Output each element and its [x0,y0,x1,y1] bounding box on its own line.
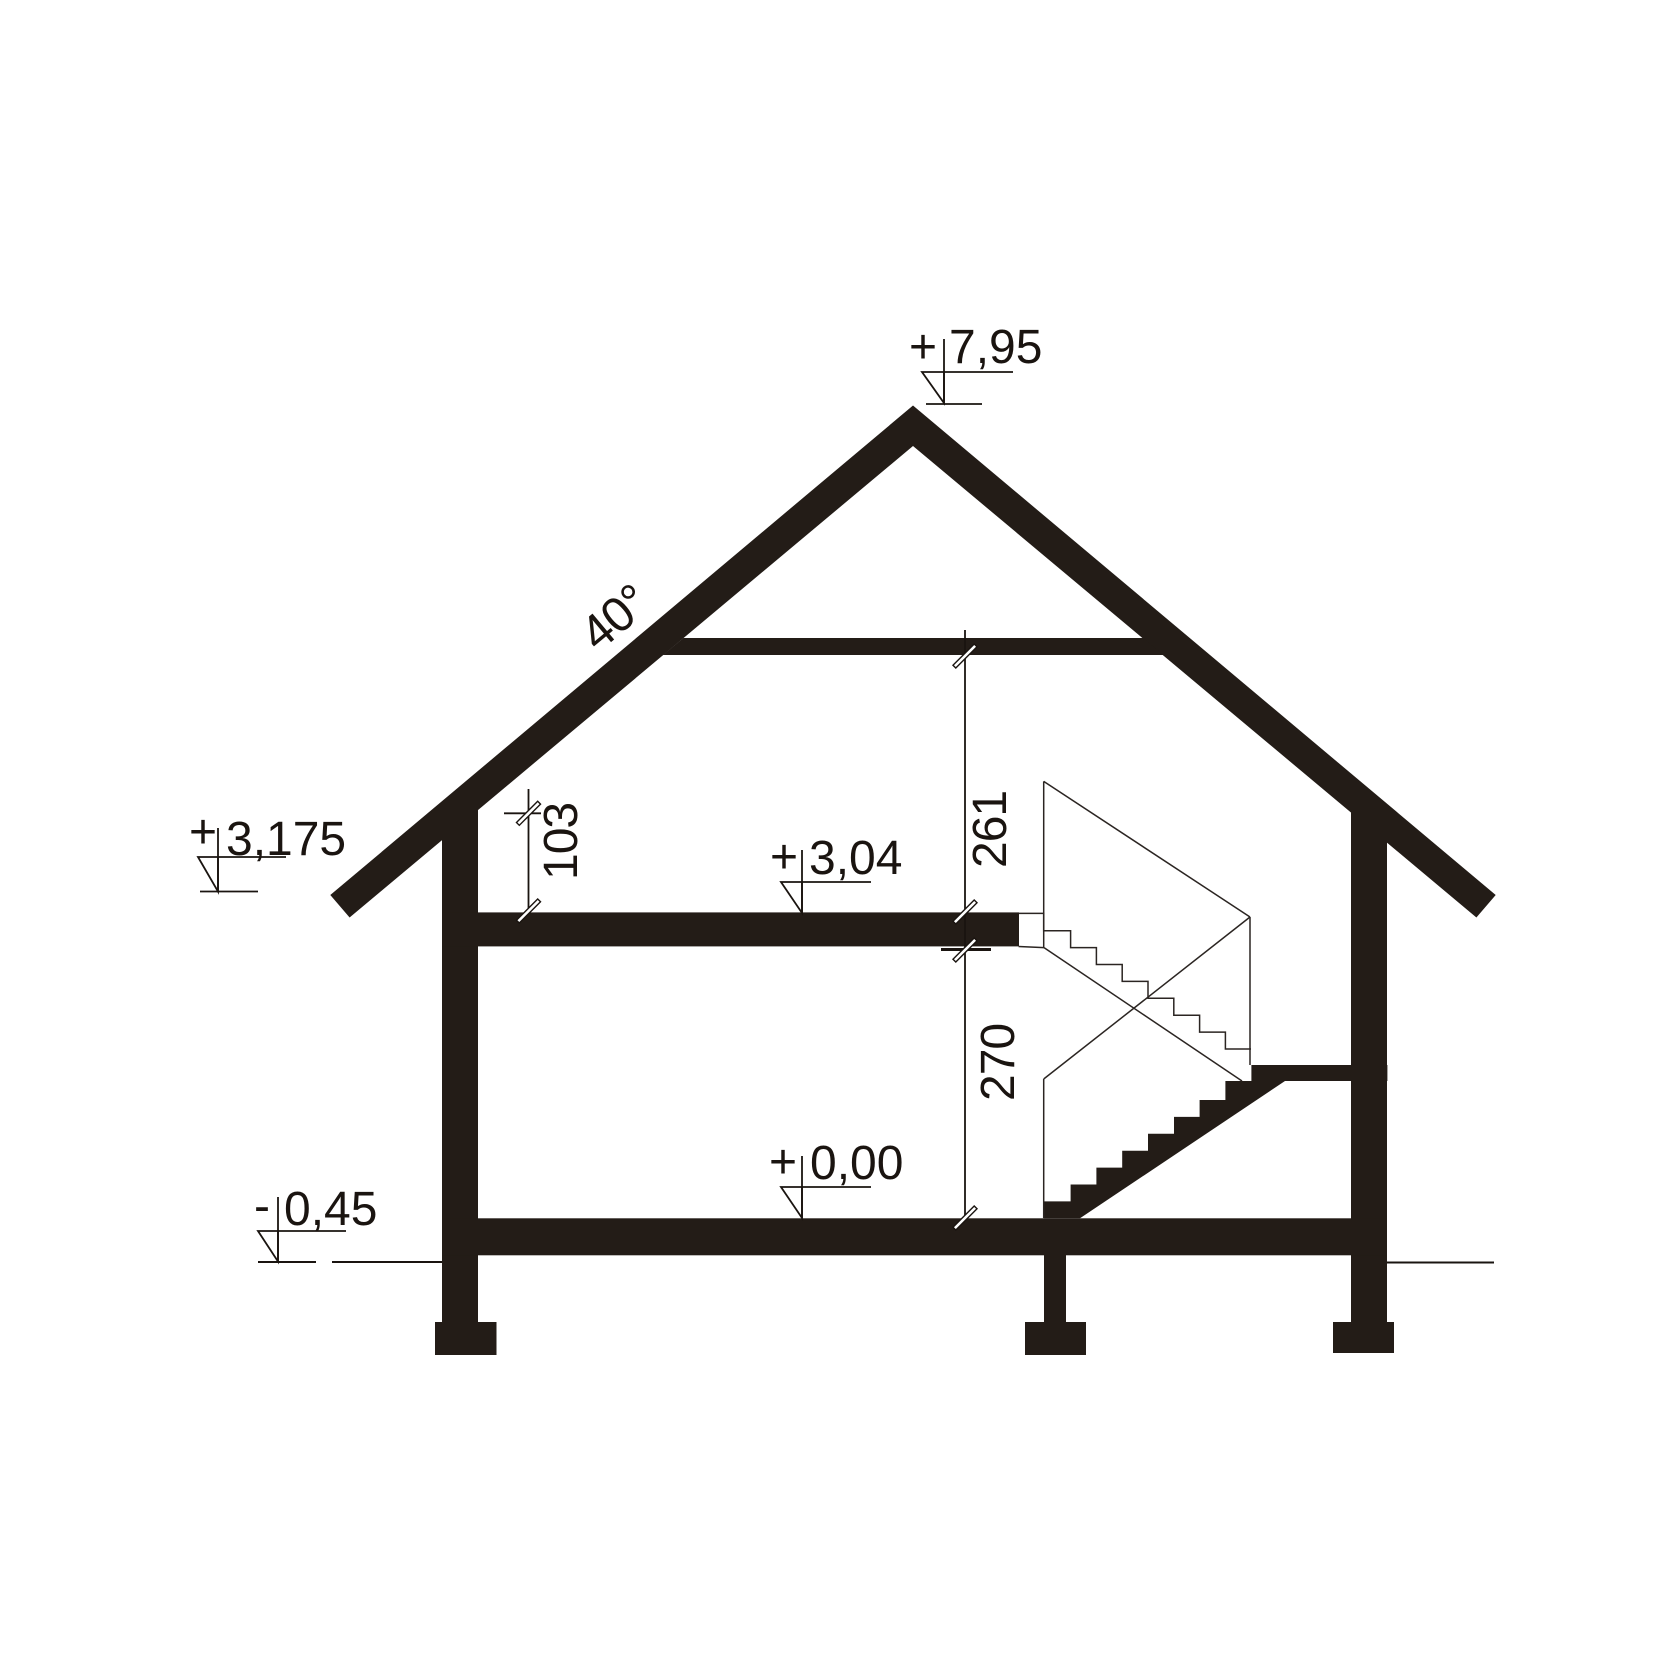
svg-text:+: + [189,806,217,859]
svg-text:270: 270 [972,1024,1025,1101]
svg-text:+: + [909,321,937,374]
svg-text:3,175: 3,175 [226,813,346,866]
svg-text:3,04: 3,04 [809,832,902,885]
svg-text:103: 103 [535,803,588,880]
svg-text:+: + [770,831,798,884]
svg-text:0,45: 0,45 [284,1183,377,1236]
svg-text:-: - [254,1180,270,1233]
svg-text:+: + [769,1136,797,1189]
svg-text:7,95: 7,95 [949,321,1042,374]
svg-text:261: 261 [964,791,1017,868]
svg-text:0,00: 0,00 [810,1137,903,1190]
